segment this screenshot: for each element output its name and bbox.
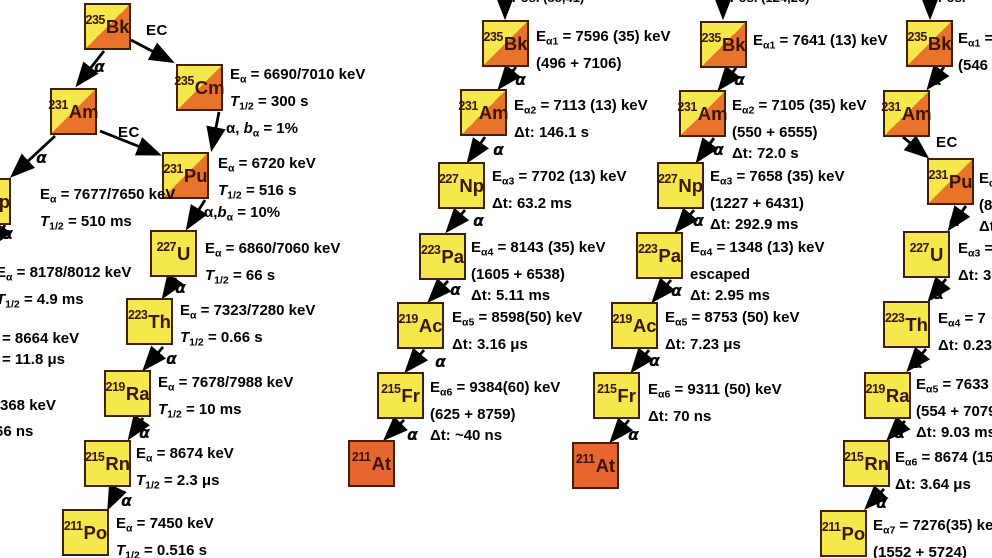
nuclide-box-223th: 223Th bbox=[883, 301, 930, 348]
alpha-decay-label: α bbox=[894, 423, 905, 442]
note-line: Eα6 = 9384(60) keV bbox=[430, 377, 560, 404]
nuclide-box-235bk: 235Bk bbox=[906, 20, 953, 67]
note-line: (496 + 7106) bbox=[536, 53, 670, 74]
nuclide-box-223pa: 223Pa bbox=[636, 232, 683, 279]
alpha-decay-label: α bbox=[515, 70, 526, 89]
alpha-decay-label: α bbox=[931, 70, 942, 89]
decay-note: Eα6 = 9311 (50) keVΔt: 70 ns bbox=[648, 379, 782, 427]
note-line: = 8664 keV bbox=[2, 328, 79, 349]
element-symbol: Rn bbox=[105, 453, 130, 475]
branching-ratio-label: α,bα = 10% bbox=[204, 204, 280, 224]
decay-note: Eα2 = 7113 (13) keVΔt: 146.1 s bbox=[514, 95, 648, 143]
decay-arrow bbox=[386, 420, 404, 438]
decay-note: Eα1 = 7596 (35) keV(496 + 7106) bbox=[536, 26, 670, 74]
note-line: Eα = 8674 keV bbox=[136, 443, 234, 470]
decay-arrow bbox=[698, 138, 714, 160]
mass-number: 211 bbox=[352, 450, 371, 464]
decay-note: Eα = 6690/7010 keVT1/2 = 300 s bbox=[230, 64, 365, 117]
note-line: Δt: 0.23 bbox=[938, 335, 992, 356]
note-line: Δt: 5.11 ms bbox=[471, 285, 605, 306]
alpha-decay-label: α bbox=[671, 281, 682, 300]
alpha-decay-label: α bbox=[450, 280, 461, 299]
decay-note: Eα6 = 9384(60) keV(625 + 8759)Δt: ~40 ns bbox=[430, 377, 560, 446]
element-symbol: U bbox=[930, 244, 943, 266]
nuclide-box-231am: 231Am bbox=[883, 90, 930, 137]
alpha-decay-label: α bbox=[435, 352, 446, 371]
element-symbol: U bbox=[177, 243, 190, 265]
decay-note: Eα = 7450 keVT1/2 = 0.516 s bbox=[116, 513, 214, 558]
element-symbol: Np bbox=[0, 191, 10, 213]
decay-note: Eα = 7323/7280 keVT1/2 = 0.66 s bbox=[180, 300, 315, 353]
note-line: (1605 + 6538) bbox=[471, 264, 605, 285]
decay-arrow bbox=[677, 210, 694, 230]
nuclide-box-231am: 231Am bbox=[679, 90, 726, 137]
note-line: Eα6 = 9311 (50) keV bbox=[648, 379, 782, 406]
nuclide-box-231am: 231Am bbox=[50, 88, 97, 135]
alpha-decay-label: α bbox=[713, 140, 724, 159]
nuclide-box-227u: 227U bbox=[150, 230, 197, 277]
decay-note: Eα6 = 8674 (15Δt: 3.64 μs bbox=[895, 447, 992, 495]
note-line: Eα = 6720 keV bbox=[218, 153, 316, 180]
mass-number: 211 bbox=[64, 519, 83, 533]
mass-number: 227 bbox=[157, 240, 176, 254]
decay-arrow bbox=[903, 137, 926, 156]
mass-number: 231 bbox=[881, 100, 900, 114]
nuclide-box-219ac: 219Ac bbox=[611, 302, 658, 349]
nuclide-box-235bk: 235Bk bbox=[84, 3, 131, 50]
element-symbol: Ac bbox=[633, 315, 657, 337]
note-line: T1/2 = 0.516 s bbox=[116, 540, 214, 558]
note-line: T1/2 = 4.9 ms bbox=[0, 289, 131, 316]
mass-number: 215 bbox=[381, 382, 400, 396]
note-line: Eα3 = bbox=[958, 238, 992, 265]
mass-number: 215 bbox=[85, 450, 104, 464]
alpha-decay-label: α bbox=[121, 491, 132, 510]
note-line: Eα2 bbox=[979, 168, 992, 195]
note-line: Eα4 = 7 bbox=[938, 308, 992, 335]
decay-note: Eα2(8Δt: bbox=[979, 168, 992, 237]
mass-number: 227 bbox=[658, 172, 677, 186]
note-line: T1/2 = 510 ms bbox=[40, 211, 175, 238]
decay-arrow bbox=[469, 137, 485, 160]
note-line: Eα4 = 8143 (35) keV bbox=[471, 237, 605, 264]
mass-number: 231 bbox=[164, 162, 183, 176]
mass-number: 219 bbox=[106, 380, 125, 394]
electron-capture-label: EC bbox=[936, 134, 958, 151]
note-line: T1/2 = 2.3 μs bbox=[136, 470, 234, 497]
element-symbol: Bk bbox=[722, 34, 746, 56]
mass-number: 231 bbox=[929, 168, 948, 182]
element-symbol: Ra bbox=[886, 385, 910, 407]
note-line: Δt: 63.2 ms bbox=[492, 193, 626, 214]
clipped-text-fragment: Pos. (124,26) bbox=[730, 0, 810, 5]
decay-note: Eα4 = 8143 (35) keV(1605 + 6538)Δt: 5.11… bbox=[471, 237, 605, 306]
mass-number: 215 bbox=[844, 450, 863, 464]
decay-note: = 8664 keV= 11.8 μs bbox=[2, 328, 79, 370]
mass-number: 235 bbox=[86, 13, 105, 27]
alpha-decay-label: α bbox=[493, 140, 504, 159]
mass-number: 235 bbox=[484, 30, 503, 44]
alpha-decay-label: α bbox=[94, 57, 105, 76]
note-line: Eα1 = 7596 (35) keV bbox=[536, 26, 670, 53]
decay-note: Eα = 6720 keVT1/2 = 516 s bbox=[218, 153, 316, 206]
decay-note: Eα5 = 8753 (50) keVΔt: 7.23 μs bbox=[665, 307, 799, 355]
note-line: 66 ns bbox=[0, 421, 33, 442]
note-line: T1/2 = 300 s bbox=[230, 91, 365, 118]
mass-number: 219 bbox=[399, 312, 418, 326]
note-line: Δt: 72.0 s bbox=[732, 143, 866, 164]
note-line: Δt: 3.64 μs bbox=[895, 474, 992, 495]
element-symbol: Bk bbox=[928, 33, 952, 55]
note-line: Δt: 2.95 ms bbox=[690, 285, 824, 306]
clipped-text-fragment: Pos. bbox=[938, 0, 965, 5]
mass-number: 227 bbox=[439, 172, 458, 186]
decay-arrow bbox=[654, 280, 671, 300]
note-line: (550 + 6555) bbox=[732, 122, 866, 143]
decay-arrow bbox=[131, 40, 171, 61]
decay-note: Eα7 = 7276(35) ke(1552 + 5724) bbox=[873, 515, 992, 558]
note-line: 368 keV bbox=[0, 395, 56, 416]
alpha-decay-label: α bbox=[628, 425, 639, 444]
decay-note: Eα = 7677/7650 keVT1/2 = 510 ms bbox=[40, 184, 175, 237]
element-symbol: Ra bbox=[126, 383, 150, 405]
note-line: (1227 + 6431) bbox=[710, 193, 844, 214]
alpha-decay-label: α bbox=[2, 224, 13, 243]
element-symbol: Pa bbox=[441, 246, 464, 268]
nuclide-box-215rn: 215Rn bbox=[843, 440, 890, 487]
element-symbol: Pa bbox=[658, 245, 681, 267]
element-symbol: Po bbox=[84, 522, 108, 544]
note-line: Eα4 = 1348 (13) keV bbox=[690, 237, 824, 264]
note-line: Eα = 7678/7988 keV bbox=[158, 372, 293, 399]
note-line: Eα = 7450 keV bbox=[116, 513, 214, 540]
note-line: Eα6 = 8674 (15 bbox=[895, 447, 992, 474]
decay-note: Eα1 = 7641 (13) keV bbox=[753, 30, 887, 57]
decay-arrow bbox=[430, 281, 448, 300]
mass-number: 211 bbox=[576, 452, 595, 466]
nuclide-box-235cm: 235Cm bbox=[176, 64, 223, 111]
nuclide-box-231pu: 231Pu bbox=[927, 158, 974, 205]
alpha-decay-chain-diagram: 235Bk235Cm231Am231Pu227Np227U223Th219Ra2… bbox=[0, 0, 992, 558]
note-line: Eα1 = 7641 (13) keV bbox=[753, 30, 887, 57]
alpha-decay-label: α bbox=[166, 349, 177, 368]
note-line: Eα1 = bbox=[958, 28, 992, 55]
nuclide-box-219ra: 219Ra bbox=[864, 372, 911, 419]
alpha-decay-label: α bbox=[36, 148, 47, 167]
note-line: Eα = 6690/7010 keV bbox=[230, 64, 365, 91]
nuclide-box-211at: 211At bbox=[572, 442, 619, 489]
note-line: Δt: ~40 ns bbox=[430, 425, 560, 446]
note-line: Eα7 = 7276(35) ke bbox=[873, 515, 992, 542]
nuclide-box-235bk: 235Bk bbox=[482, 20, 529, 67]
note-line: Eα5 = 8753 (50) keV bbox=[665, 307, 799, 334]
note-line: (546 + bbox=[958, 55, 992, 76]
note-line: T1/2 = 0.66 s bbox=[180, 327, 315, 354]
nuclide-box-235bk: 235Bk bbox=[700, 21, 747, 68]
clipped-text-fragment: Pos. (88,41) bbox=[512, 0, 584, 5]
note-line: escaped bbox=[690, 264, 824, 285]
decay-arrow bbox=[145, 347, 163, 368]
element-symbol: Ac bbox=[419, 315, 443, 337]
decay-note: Eα = 8674 keVT1/2 = 2.3 μs bbox=[136, 443, 234, 496]
note-line: Eα3 = 7702 (13) keV bbox=[492, 166, 626, 193]
element-symbol: Pu bbox=[949, 171, 973, 193]
note-line: Δt: bbox=[979, 216, 992, 237]
note-line: Δt: 7.23 μs bbox=[665, 334, 799, 355]
decay-note: Eα3 = 7702 (13) keVΔt: 63.2 ms bbox=[492, 166, 626, 214]
note-line: Δt: 70 ns bbox=[648, 406, 782, 427]
element-symbol: Am bbox=[698, 103, 728, 125]
nuclide-box-211po: 211Po bbox=[62, 509, 109, 556]
mass-number: 235 bbox=[702, 31, 721, 45]
note-line: Eα = 6860/7060 keV bbox=[205, 238, 340, 265]
decay-arrow bbox=[448, 210, 465, 230]
mass-number: 211 bbox=[822, 520, 841, 534]
element-symbol: Np bbox=[459, 175, 484, 197]
element-symbol: Th bbox=[905, 314, 928, 336]
decay-arrow bbox=[109, 490, 117, 507]
decay-note: Eα5 = 7633(554 + 7079Δt: 9.03 ms bbox=[916, 374, 992, 443]
mass-number: 223 bbox=[421, 243, 440, 257]
element-symbol: Am bbox=[902, 103, 932, 125]
element-symbol: Cm bbox=[195, 77, 225, 99]
alpha-decay-label: α bbox=[649, 351, 660, 370]
note-line: Δt: 146.1 s bbox=[514, 122, 648, 143]
decay-note: Eα = 6860/7060 keVT1/2 = 66 s bbox=[205, 238, 340, 291]
element-symbol: Bk bbox=[106, 16, 130, 38]
branching-ratio-label: α, bα = 1% bbox=[226, 120, 298, 140]
alpha-decay-label: α bbox=[473, 211, 484, 230]
decay-arrow bbox=[407, 350, 424, 370]
alpha-decay-label: α bbox=[693, 211, 704, 230]
note-line: (554 + 7079 bbox=[916, 401, 992, 422]
element-symbol: At bbox=[372, 453, 392, 475]
mass-number: 235 bbox=[174, 74, 193, 88]
alpha-decay-label: α bbox=[175, 278, 186, 297]
decay-note: Eα = 8178/8012 keVT1/2 = 4.9 ms bbox=[0, 262, 131, 315]
note-line: = 11.8 μs bbox=[2, 349, 79, 370]
nuclide-box-223th: 223Th bbox=[126, 298, 173, 345]
note-line: Eα = 8178/8012 keV bbox=[0, 262, 131, 289]
note-line: Eα5 = 8598(50) keV bbox=[452, 307, 582, 334]
mass-number: 227 bbox=[910, 241, 929, 255]
note-line: Δt: 3.16 μs bbox=[452, 334, 582, 355]
nuclide-box-211at: 211At bbox=[348, 440, 395, 487]
nuclide-box-219ac: 219Ac bbox=[397, 302, 444, 349]
decay-arrow bbox=[212, 112, 219, 148]
alpha-decay-label: α bbox=[876, 493, 887, 512]
decay-arrow bbox=[633, 350, 649, 370]
nuclide-box-215fr: 215Fr bbox=[593, 372, 640, 419]
mass-number: 219 bbox=[613, 312, 632, 326]
mass-number: 231 bbox=[458, 99, 477, 113]
element-symbol: Fr bbox=[401, 385, 420, 407]
electron-capture-label: EC bbox=[146, 22, 168, 39]
alpha-decay-label: α bbox=[933, 284, 944, 303]
element-symbol: Rn bbox=[864, 453, 889, 475]
element-symbol: Bk bbox=[504, 33, 528, 55]
decay-arrow bbox=[13, 136, 55, 175]
nuclide-box-211po: 211Po bbox=[820, 510, 867, 557]
mass-number: 215 bbox=[597, 382, 616, 396]
mass-number: 231 bbox=[48, 98, 67, 112]
note-line: Eα5 = 7633 bbox=[916, 374, 992, 401]
nuclide-box-215fr: 215Fr bbox=[377, 372, 424, 419]
decay-note: Eα3 = 7658 (35) keV(1227 + 6431)Δt: 292.… bbox=[710, 166, 844, 235]
decay-arrow bbox=[188, 200, 205, 227]
note-line: (1552 + 5724) bbox=[873, 542, 992, 558]
element-symbol: Am bbox=[69, 101, 99, 123]
note-line: Eα2 = 7105 (35) keV bbox=[732, 95, 866, 122]
nuclide-box-227u: 227U bbox=[903, 231, 950, 278]
element-symbol: Fr bbox=[617, 385, 636, 407]
decay-note: 368 keV bbox=[0, 395, 56, 416]
decay-arrow bbox=[500, 67, 516, 87]
alpha-decay-label: α bbox=[407, 425, 418, 444]
note-line: Eα = 7323/7280 keV bbox=[180, 300, 315, 327]
decay-note: Eα2 = 7105 (35) keV(550 + 6555)Δt: 72.0 … bbox=[732, 95, 866, 164]
alpha-decay-label: α bbox=[734, 70, 745, 89]
element-symbol: Np bbox=[678, 175, 703, 197]
element-symbol: Pu bbox=[184, 165, 208, 187]
nuclide-box-227np: 227Np bbox=[438, 162, 485, 209]
note-line: (8 bbox=[979, 195, 992, 216]
decay-note: Eα4 = 7Δt: 0.23 bbox=[938, 308, 992, 356]
note-line: T1/2 = 10 ms bbox=[158, 399, 293, 426]
note-line: Eα2 = 7113 (13) keV bbox=[514, 95, 648, 122]
note-line: Δt: 30 bbox=[958, 265, 992, 286]
note-line: (625 + 8759) bbox=[430, 404, 560, 425]
nuclide-box-227np: 227Np bbox=[657, 162, 704, 209]
nuclide-box-219ra: 219Ra bbox=[104, 370, 151, 417]
decay-note: Eα4 = 1348 (13) keVescapedΔt: 2.95 ms bbox=[690, 237, 824, 306]
element-symbol: Th bbox=[148, 311, 171, 333]
note-line: Δt: 292.9 ms bbox=[710, 214, 844, 235]
decay-note: Eα1 =(546 + bbox=[958, 28, 992, 76]
alpha-decay-label: α bbox=[949, 211, 960, 230]
decay-note: Eα = 7678/7988 keVT1/2 = 10 ms bbox=[158, 372, 293, 425]
electron-capture-label: EC bbox=[118, 124, 140, 141]
nuclide-box-215rn: 215Rn bbox=[84, 440, 131, 487]
element-symbol: Po bbox=[842, 523, 866, 545]
element-symbol: Am bbox=[479, 102, 509, 124]
alpha-decay-label: α bbox=[139, 423, 150, 442]
note-line: T1/2 = 516 s bbox=[218, 180, 316, 207]
note-line: Eα = 7677/7650 keV bbox=[40, 184, 175, 211]
mass-number: 235 bbox=[908, 30, 927, 44]
decay-note: 66 ns bbox=[0, 421, 33, 442]
mass-number: 219 bbox=[866, 382, 885, 396]
nuclide-box-231am: 231Am bbox=[460, 89, 507, 136]
decay-arrow bbox=[612, 420, 629, 440]
decay-note: Eα3 =Δt: 30 bbox=[958, 238, 992, 286]
mass-number: 231 bbox=[677, 100, 696, 114]
note-line: Δt: 9.03 ms bbox=[916, 422, 992, 443]
element-symbol: At bbox=[596, 455, 616, 477]
decay-note: Eα5 = 8598(50) keVΔt: 3.16 μs bbox=[452, 307, 582, 355]
note-line: T1/2 = 66 s bbox=[205, 265, 340, 292]
note-line: Eα3 = 7658 (35) keV bbox=[710, 166, 844, 193]
nuclide-box-227np: 227Np bbox=[0, 178, 11, 225]
nuclide-box-223pa: 223Pa bbox=[419, 233, 466, 280]
mass-number: 223 bbox=[638, 242, 657, 256]
mass-number: 223 bbox=[885, 311, 904, 325]
alpha-decay-label: α bbox=[912, 353, 923, 372]
